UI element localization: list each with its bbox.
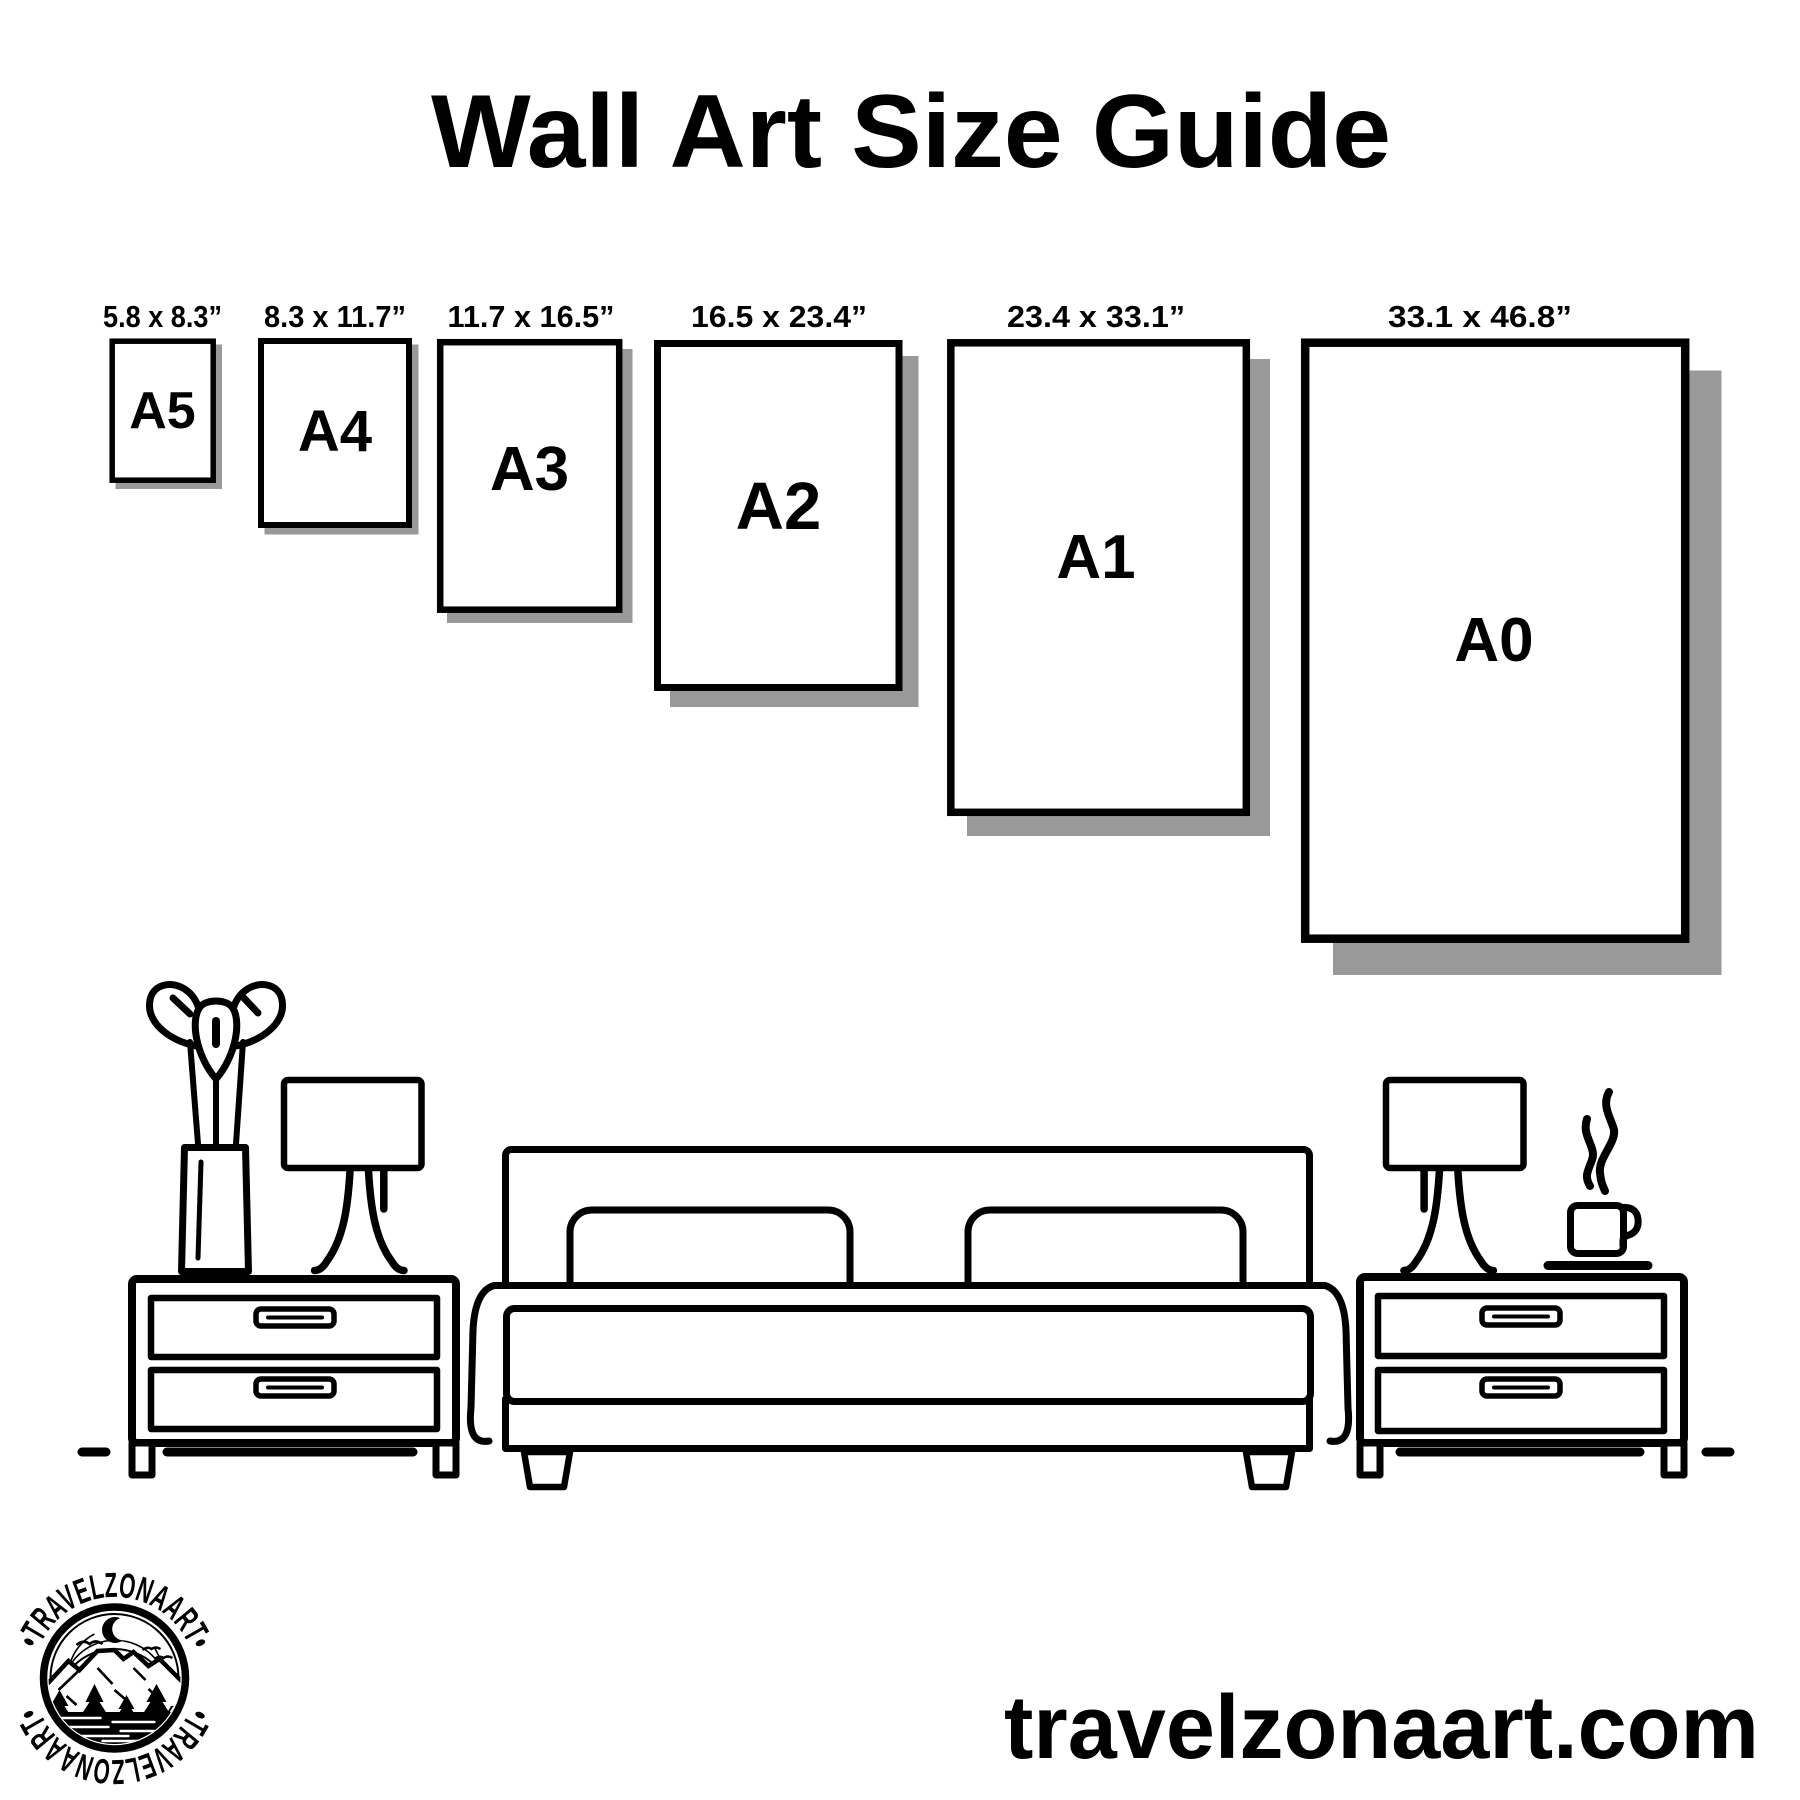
svg-text:A4: A4	[298, 399, 372, 464]
svg-text:travelzonaart.com: travelzonaart.com	[1004, 1678, 1759, 1778]
svg-text:Wall Art Size Guide: Wall Art Size Guide	[431, 74, 1391, 190]
svg-text:11.7 x 16.5”: 11.7 x 16.5”	[448, 299, 615, 334]
svg-text:23.4 x 33.1”: 23.4 x 33.1”	[1007, 299, 1185, 334]
svg-text:16.5 x 23.4”: 16.5 x 23.4”	[691, 299, 867, 334]
svg-text:A1: A1	[1056, 523, 1135, 592]
svg-text:8.3 x 11.7”: 8.3 x 11.7”	[264, 299, 406, 334]
svg-text:A3: A3	[490, 435, 569, 504]
svg-text:A2: A2	[736, 469, 822, 544]
svg-text:5.8 x 8.3”: 5.8 x 8.3”	[103, 299, 222, 334]
svg-text:33.1 x 46.8”: 33.1 x 46.8”	[1388, 299, 1572, 334]
svg-text:A0: A0	[1454, 606, 1533, 675]
svg-text:A5: A5	[129, 382, 195, 440]
